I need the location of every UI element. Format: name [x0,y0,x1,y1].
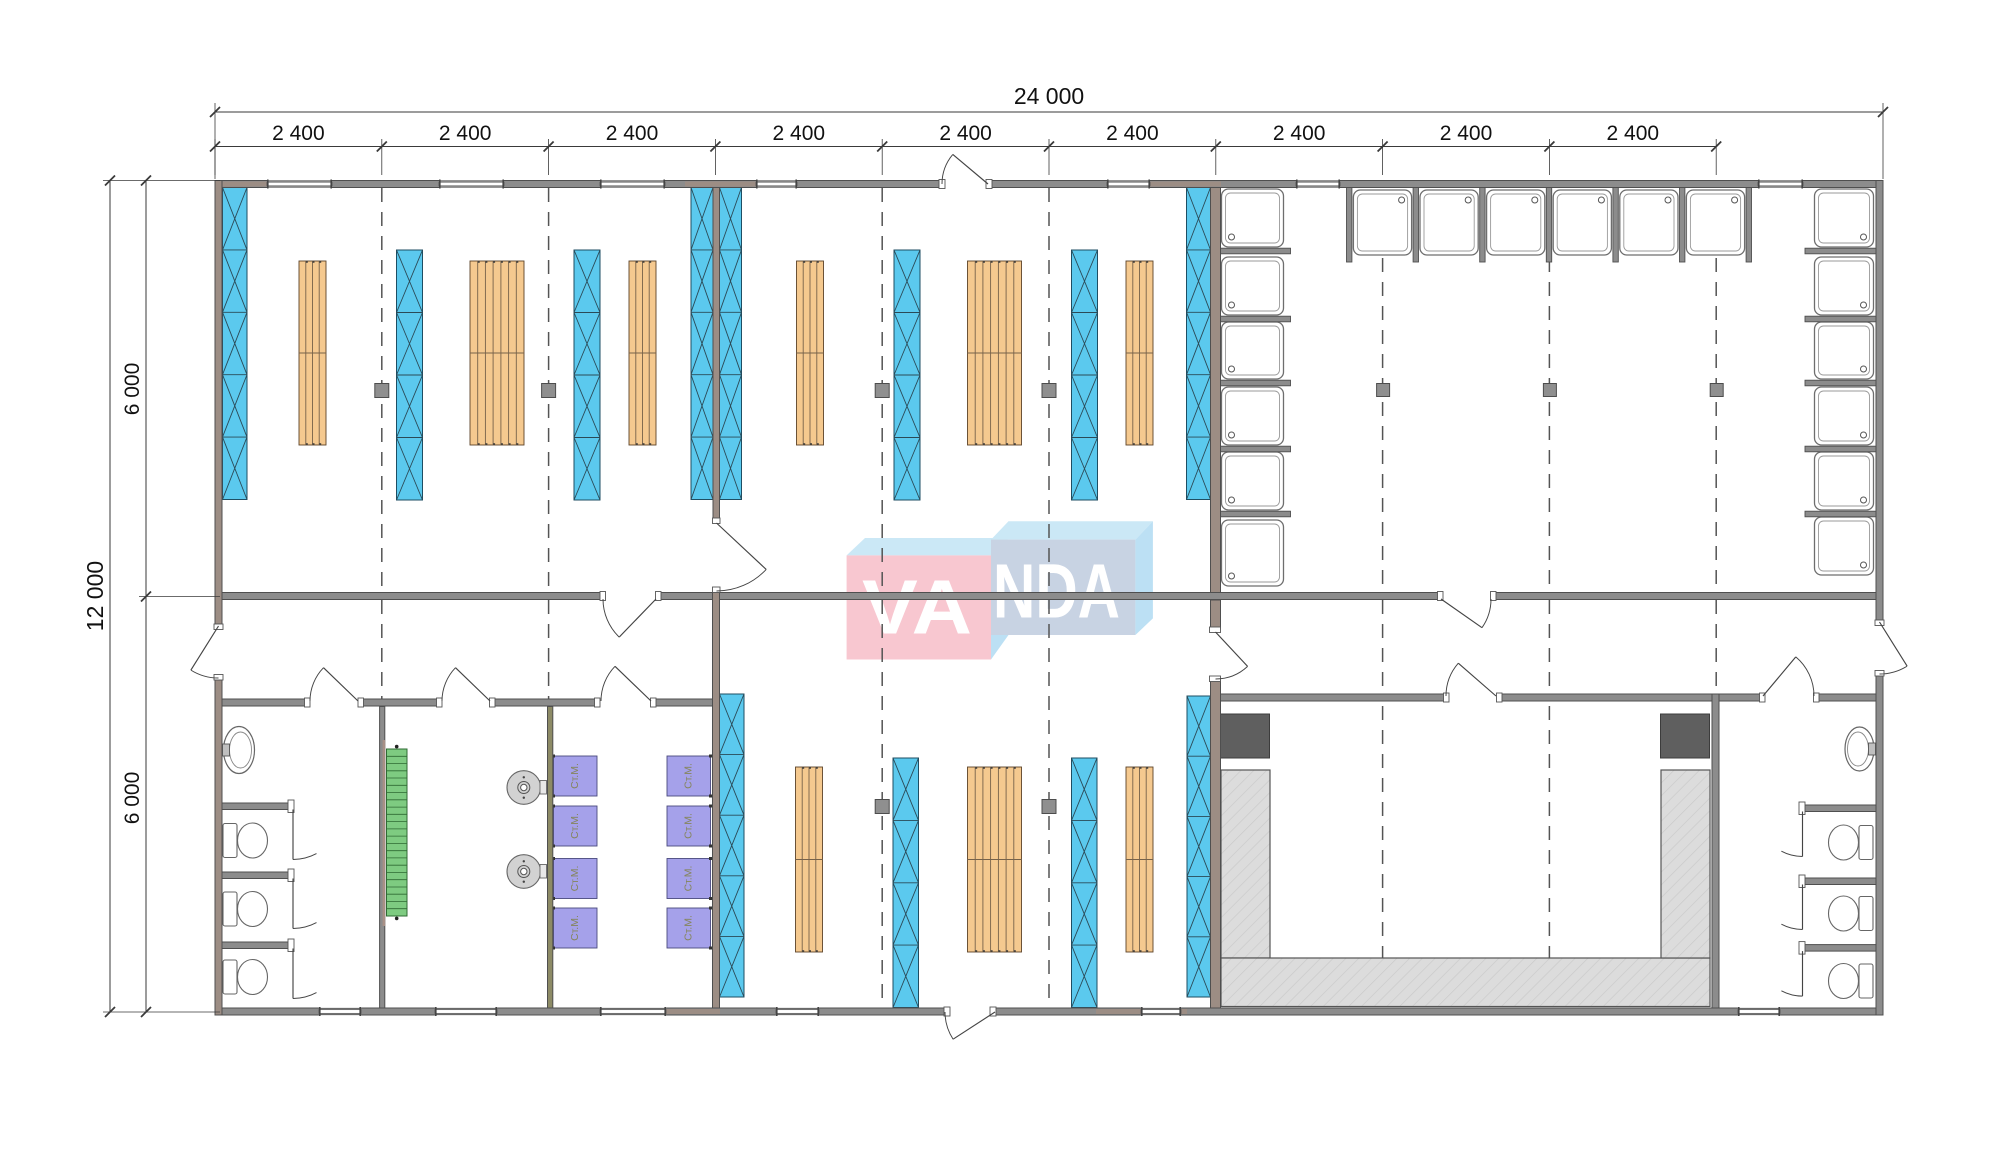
svg-text:Ст.М.: Ст.М. [683,915,695,941]
svg-text:2 400: 2 400 [1607,122,1660,145]
svg-text:Ст.М.: Ст.М. [683,813,695,839]
svg-text:2 400: 2 400 [272,122,325,145]
svg-text:12 000: 12 000 [82,561,108,631]
svg-text:Ст.М.: Ст.М. [683,866,695,892]
svg-text:Ст.М.: Ст.М. [683,763,695,789]
svg-text:Ст.М.: Ст.М. [569,915,581,941]
svg-text:2 400: 2 400 [939,122,992,145]
svg-text:2 400: 2 400 [773,122,826,145]
svg-text:2 400: 2 400 [1440,122,1493,145]
svg-text:2 400: 2 400 [1273,122,1326,145]
svg-text:2 400: 2 400 [1106,122,1159,145]
svg-text:24 000: 24 000 [1014,83,1084,109]
svg-text:Ст.М.: Ст.М. [569,813,581,839]
svg-text:NDA: NDA [993,549,1120,635]
svg-text:VA: VA [862,565,972,651]
svg-text:Ст.М.: Ст.М. [569,763,581,789]
svg-text:6 000: 6 000 [121,363,144,416]
svg-text:Ст.М.: Ст.М. [569,866,581,892]
svg-text:2 400: 2 400 [439,122,492,145]
svg-text:6 000: 6 000 [121,772,144,825]
svg-text:2 400: 2 400 [606,122,659,145]
